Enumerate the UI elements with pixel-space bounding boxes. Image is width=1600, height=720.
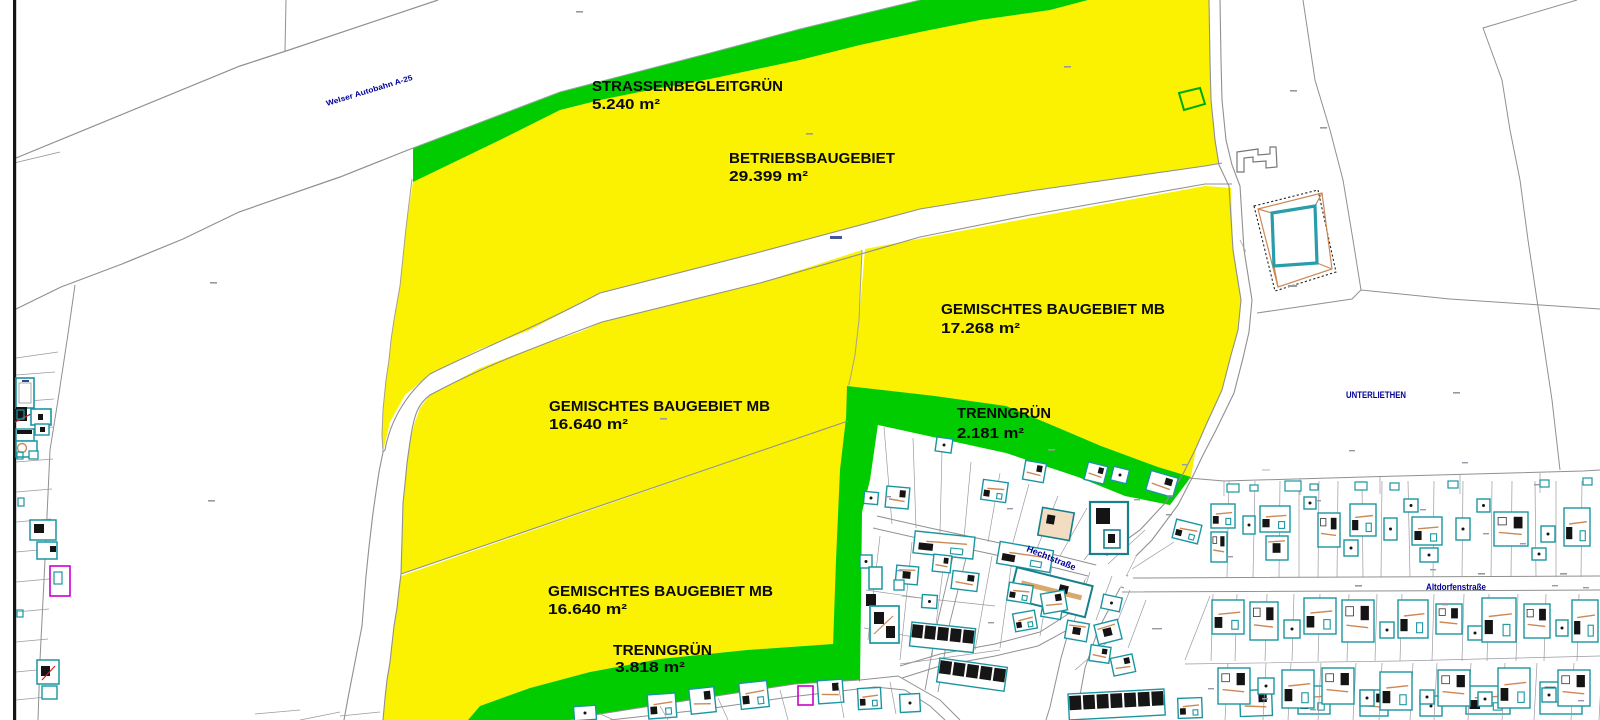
svg-text:Altdorfenstraße: Altdorfenstraße: [1426, 582, 1486, 592]
svg-text:16.640 m²: 16.640 m²: [549, 417, 628, 433]
svg-text:GEMISCHTES BAUGEBIET MB: GEMISCHTES BAUGEBIET MB: [548, 584, 773, 600]
svg-text:GEMISCHTES BAUGEBIET MB: GEMISCHTES BAUGEBIET MB: [549, 399, 770, 415]
svg-text:3.818 m²: 3.818 m²: [615, 660, 685, 676]
svg-text:GEMISCHTES BAUGEBIET MB: GEMISCHTES BAUGEBIET MB: [941, 302, 1165, 318]
svg-text:16.640 m²: 16.640 m²: [548, 602, 627, 618]
svg-text:BETRIEBSBAUGEBIET: BETRIEBSBAUGEBIET: [729, 151, 895, 167]
svg-text:2.181 m²: 2.181 m²: [957, 426, 1024, 442]
svg-text:17.268 m²: 17.268 m²: [941, 321, 1020, 337]
svg-text:TRENNGRÜN: TRENNGRÜN: [613, 642, 712, 659]
svg-text:5.240 m²: 5.240 m²: [592, 97, 660, 113]
svg-text:STRASSENBEGLEITGRÜN: STRASSENBEGLEITGRÜN: [592, 78, 783, 95]
svg-text:UNTERLIETHEN: UNTERLIETHEN: [1346, 390, 1406, 400]
svg-text:TRENNGRÜN: TRENNGRÜN: [957, 405, 1051, 422]
svg-text:29.399 m²: 29.399 m²: [729, 169, 808, 185]
